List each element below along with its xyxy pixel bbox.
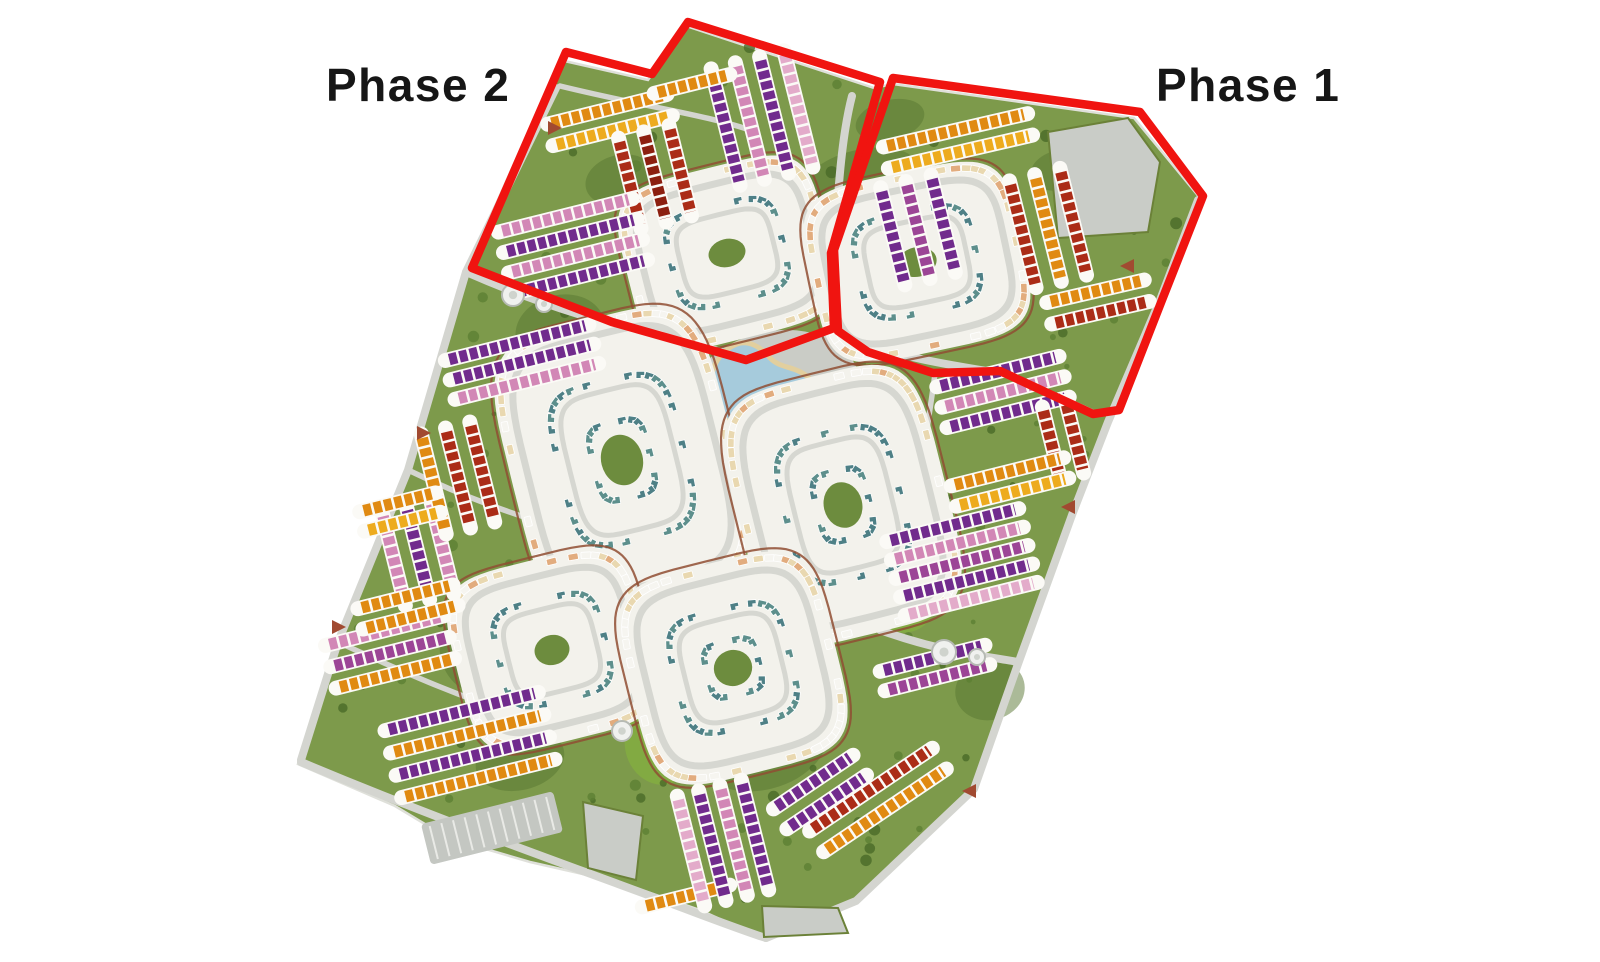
masterplan-stage: Phase 2 Phase 1 [0,0,1600,962]
phase-2-label: Phase 2 [326,62,510,108]
phase-1-label: Phase 1 [1156,62,1340,108]
masterplan-svg [0,0,1600,962]
